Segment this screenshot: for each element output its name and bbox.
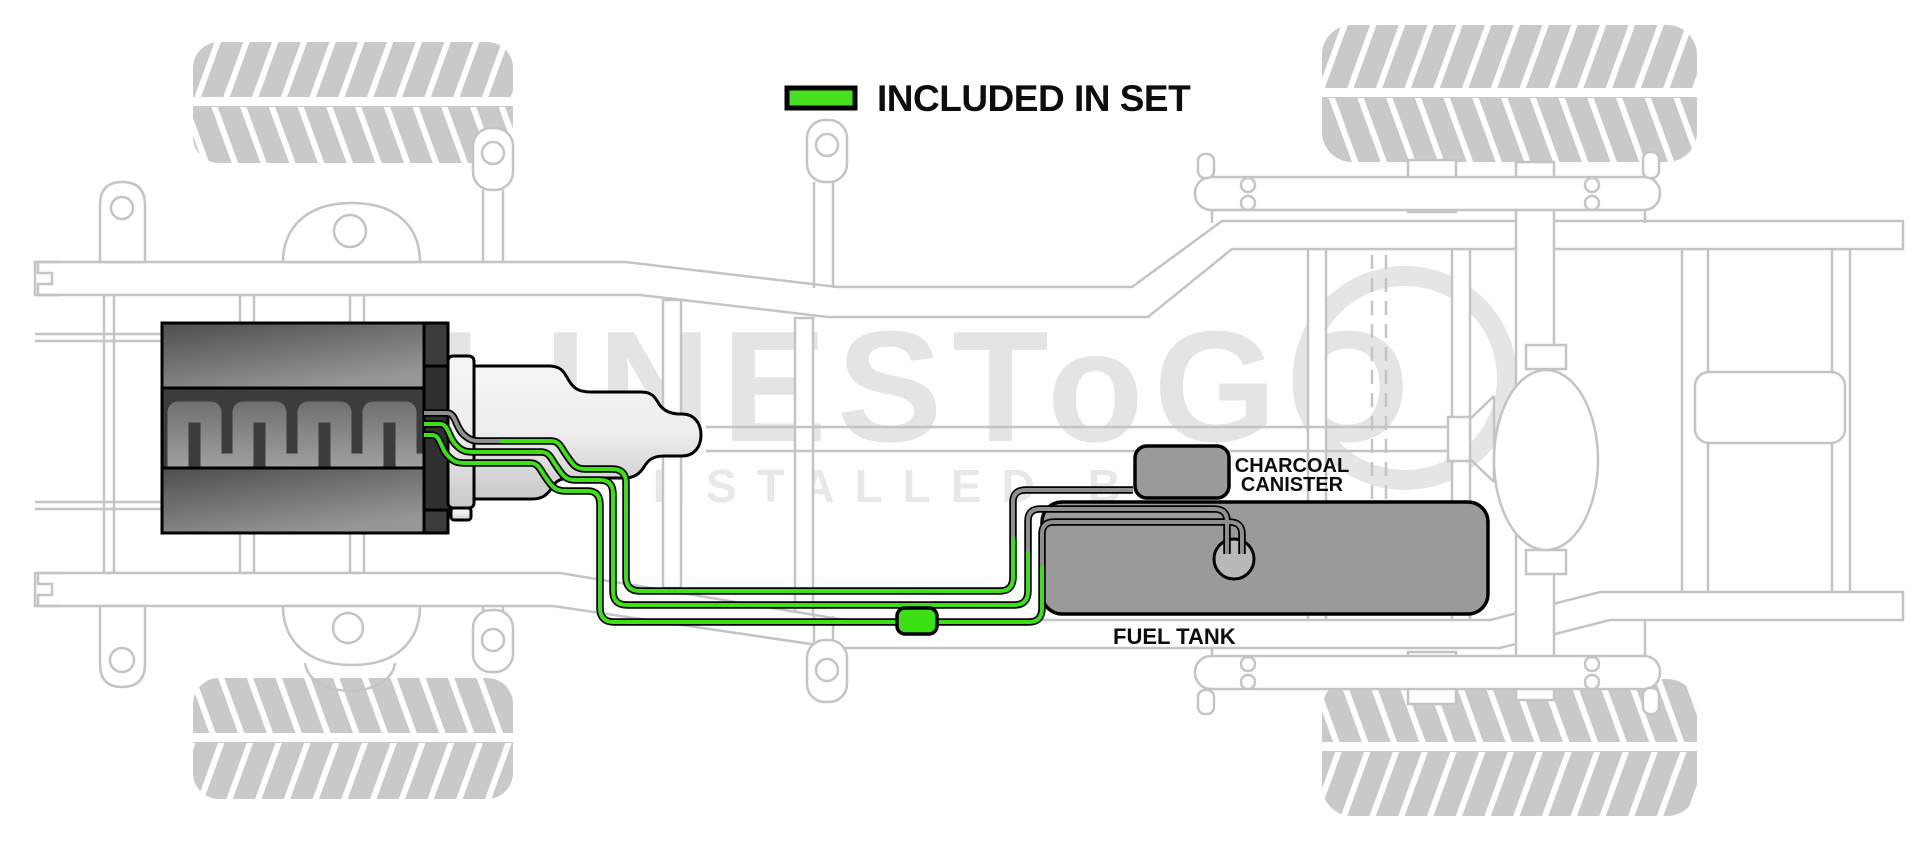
leaf-spring-top: [1195, 152, 1660, 223]
diff-coupler: [1526, 345, 1566, 369]
diff-coupler: [1526, 550, 1566, 574]
front-axle-lines: [35, 334, 162, 509]
valve-cover-bottom: [162, 468, 424, 533]
transmission-mount-tab: [451, 508, 471, 520]
engine: [162, 323, 470, 533]
tire-front-right-icon: [1322, 25, 1697, 162]
inline-fuel-filter: [897, 608, 937, 634]
legend-swatch-icon: [787, 88, 855, 108]
tire-rear-left-icon: [193, 678, 513, 799]
differential: [1494, 370, 1598, 550]
legend: INCLUDED IN SET: [787, 78, 1191, 119]
charcoal-canister-label-line2: CANISTER: [1241, 474, 1344, 496]
tire-front-left-icon: [193, 42, 513, 163]
charcoal-canister: [1135, 446, 1229, 498]
rear-crossmember-plate: [1695, 372, 1845, 443]
tire-rear-right-icon: [1322, 679, 1697, 816]
crossmember: [104, 295, 114, 573]
crossmember: [795, 318, 813, 618]
valve-cover-top: [162, 323, 424, 388]
fuel-line-diagram-page: LINESToGO INSTALLED BY: [0, 0, 1930, 841]
fuel-pump-sender: [1214, 539, 1254, 579]
chassis-diagram: LINESToGO INSTALLED BY: [0, 0, 1930, 841]
fuel-tank-label: FUEL TANK: [1113, 624, 1236, 649]
legend-label: INCLUDED IN SET: [877, 78, 1191, 119]
